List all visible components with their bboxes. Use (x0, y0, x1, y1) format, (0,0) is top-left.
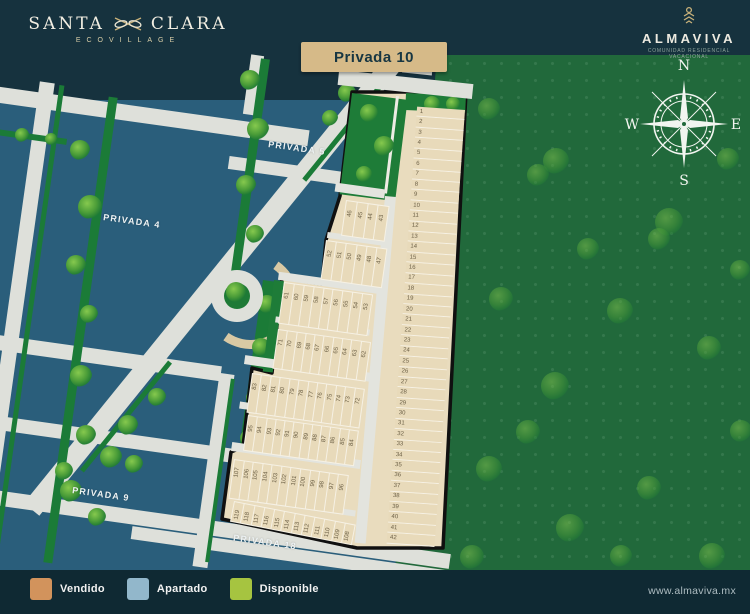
footer-bar: Vendido Apartado Disponible www.almaviva… (0, 570, 750, 614)
lot-number: 91 (284, 430, 291, 437)
almaviva-name: ALMAVIVA (630, 31, 748, 46)
lot-number: 50 (346, 253, 353, 260)
lot-number: 41 (387, 524, 397, 531)
legend: Vendido Apartado Disponible (30, 578, 319, 600)
lot-number: 27 (398, 379, 408, 386)
lot-number: 64 (342, 348, 349, 355)
compass-east: E (731, 117, 741, 133)
lot-number: 40 (388, 514, 398, 521)
dragonfly-icon (111, 15, 145, 33)
lot-number: 46 (347, 210, 354, 217)
lot-number: 51 (336, 251, 343, 258)
lot-number: 53 (362, 303, 369, 310)
lot-number: 43 (379, 214, 386, 221)
lot-number: 11 (409, 212, 419, 219)
lot-number: 44 (368, 213, 375, 220)
lot-number: 14 (407, 244, 417, 251)
lot-number: 47 (377, 257, 384, 264)
lot-number: 17 (405, 275, 415, 282)
lot-number: 106 (243, 469, 250, 480)
lot-number: 54 (353, 302, 360, 309)
lot-number: 72 (355, 397, 362, 404)
lot-number: 21 (402, 316, 412, 323)
lot-number: 1 (417, 108, 424, 114)
lot-number: 49 (356, 254, 363, 261)
lot-number: 38 (390, 493, 400, 500)
lot-number: 109 (334, 529, 342, 540)
lot-number: 114 (283, 519, 291, 530)
lot-number: 98 (319, 481, 326, 488)
lot-number: 66 (324, 345, 331, 352)
lot-number: 69 (296, 341, 303, 348)
lot-number: 26 (398, 368, 408, 375)
lot-number: 80 (280, 387, 287, 394)
lot-number: 76 (317, 392, 324, 399)
lot-number: 58 (314, 296, 321, 303)
santa-clara-logo: SANTA CLARA ECOVILLAGE (28, 14, 228, 44)
lot-number: 61 (284, 292, 291, 299)
roundabout-island (224, 283, 250, 309)
santa-clara-word1: SANTA (28, 14, 104, 34)
lot-number: 90 (294, 431, 301, 438)
lot-number: 81 (271, 385, 278, 392)
lot-number: 20 (403, 306, 413, 313)
lot-number: 45 (357, 211, 364, 218)
lot-number: 4 (414, 140, 421, 146)
lot-number: 62 (361, 351, 368, 358)
lot-number: 85 (339, 438, 346, 445)
lot-number: 84 (349, 439, 356, 446)
lot-number: 115 (273, 517, 281, 528)
lot-number: 42 (387, 535, 397, 542)
lot-number: 7 (412, 171, 419, 177)
lot-number: 68 (305, 343, 312, 350)
lot-number: 70 (287, 340, 294, 347)
lot-number: 119 (233, 510, 241, 521)
lot-number: 104 (262, 471, 269, 482)
lot-number: 95 (248, 425, 255, 432)
lot-number: 83 (252, 383, 259, 390)
lot-number: 24 (400, 347, 410, 354)
lot-number: 75 (327, 393, 334, 400)
lot-number: 101 (291, 475, 298, 486)
lot-number: 10 (410, 202, 420, 209)
lot-number: 78 (299, 389, 306, 396)
website-url[interactable]: www.almaviva.mx (648, 585, 736, 597)
lot-number: 87 (321, 435, 328, 442)
lot-number: 25 (399, 358, 409, 365)
legend-label: Apartado (157, 583, 208, 595)
lot-number: 35 (392, 462, 402, 469)
lot-number: 28 (397, 389, 407, 396)
lot-number: 12 (409, 223, 419, 230)
lot-number: 13 (408, 233, 418, 240)
lot-number: 36 (391, 472, 401, 479)
legend-color-swatch (127, 578, 149, 600)
legend-color-swatch (30, 578, 52, 600)
lot-number: 82 (261, 384, 268, 391)
lot-number: 79 (289, 388, 296, 395)
lot-number: 113 (294, 521, 302, 532)
lot-number: 67 (315, 344, 322, 351)
lot-number: 110 (324, 527, 332, 538)
santa-clara-subtitle: ECOVILLAGE (28, 37, 228, 44)
lot-number: 102 (281, 474, 288, 485)
lot-number: 5 (414, 150, 421, 156)
lot-number: 63 (351, 349, 358, 356)
lot-number: 77 (308, 391, 315, 398)
lot-number: 65 (333, 347, 340, 354)
lot-number: 15 (406, 254, 416, 261)
lot-number: 3 (415, 129, 422, 135)
legend-label: Disponible (260, 583, 319, 595)
lot-number: 6 (413, 160, 420, 166)
lot-number: 99 (310, 480, 317, 487)
lot-number: 94 (257, 426, 264, 433)
lot-number: 107 (234, 467, 241, 478)
lot-number: 2 (416, 119, 423, 125)
compass-north: N (678, 58, 690, 74)
lot-number: 92 (275, 429, 282, 436)
privada-title-badge: Privada 10 (301, 42, 447, 72)
lot-number: 118 (243, 512, 251, 523)
lot-number: 29 (396, 399, 406, 406)
lot-number: 56 (333, 299, 340, 306)
site-plan-page: 1234567891011121314151617181920212223242… (0, 0, 750, 614)
lot-number: 9 (411, 192, 418, 198)
compass-south: S (679, 173, 689, 188)
lot-number: 19 (403, 295, 413, 302)
lot-number: 37 (390, 483, 400, 490)
lot-number: 8 (411, 181, 418, 187)
lot-number: 39 (389, 503, 399, 510)
legend-item: Vendido (30, 578, 105, 600)
lot-number: 105 (253, 470, 260, 481)
lot-number: 103 (272, 473, 279, 484)
lot-number: 52 (326, 250, 333, 257)
legend-color-swatch (230, 578, 252, 600)
lot-number: 100 (300, 477, 307, 488)
almaviva-logo: ALMAVIVA COMUNIDAD RESIDENCIAL VACACIONA… (630, 6, 748, 60)
legend-item: Apartado (127, 578, 208, 600)
lot-number: 16 (406, 264, 416, 271)
lot-number: 111 (314, 525, 322, 535)
lot-number: 89 (303, 433, 310, 440)
lot-number: 22 (401, 327, 411, 334)
lot-number: 30 (395, 410, 405, 417)
lot-number: 18 (404, 285, 414, 292)
lot-number: 32 (394, 431, 404, 438)
lot-number: 88 (312, 434, 319, 441)
lot-number: 31 (395, 420, 405, 427)
legend-label: Vendido (60, 583, 105, 595)
compass-rose: N S W E (624, 56, 744, 188)
lot-number: 93 (266, 427, 273, 434)
lot-row-47-52: 525150494847 (320, 240, 387, 288)
lot-number: 97 (329, 482, 336, 489)
lot-number: 34 (393, 451, 403, 458)
lot-number: 108 (344, 531, 352, 542)
lot-number: 33 (393, 441, 403, 448)
lot-row-43-46: 46454443 (341, 200, 390, 242)
legend-item: Disponible (230, 578, 319, 600)
lot-number: 117 (253, 513, 261, 524)
lot-number: 48 (367, 256, 374, 263)
lot-number: 60 (294, 293, 301, 300)
lot-number: 59 (304, 295, 311, 302)
lot-number: 73 (345, 396, 352, 403)
lot-number: 55 (343, 300, 350, 307)
lot-number: 74 (336, 395, 343, 402)
almaviva-tagline: COMUNIDAD RESIDENCIAL VACACIONAL (630, 48, 748, 60)
lot-number: 57 (323, 297, 330, 304)
lot-number: 112 (304, 523, 312, 534)
lot-number: 96 (338, 484, 345, 491)
almaviva-icon (681, 6, 697, 24)
compass-west: W (625, 117, 640, 133)
lot-number: 116 (263, 515, 271, 526)
santa-clara-word2: CLARA (151, 14, 228, 34)
lot-number: 86 (330, 436, 337, 443)
lot-number: 71 (278, 339, 285, 346)
lot-number: 23 (401, 337, 411, 344)
